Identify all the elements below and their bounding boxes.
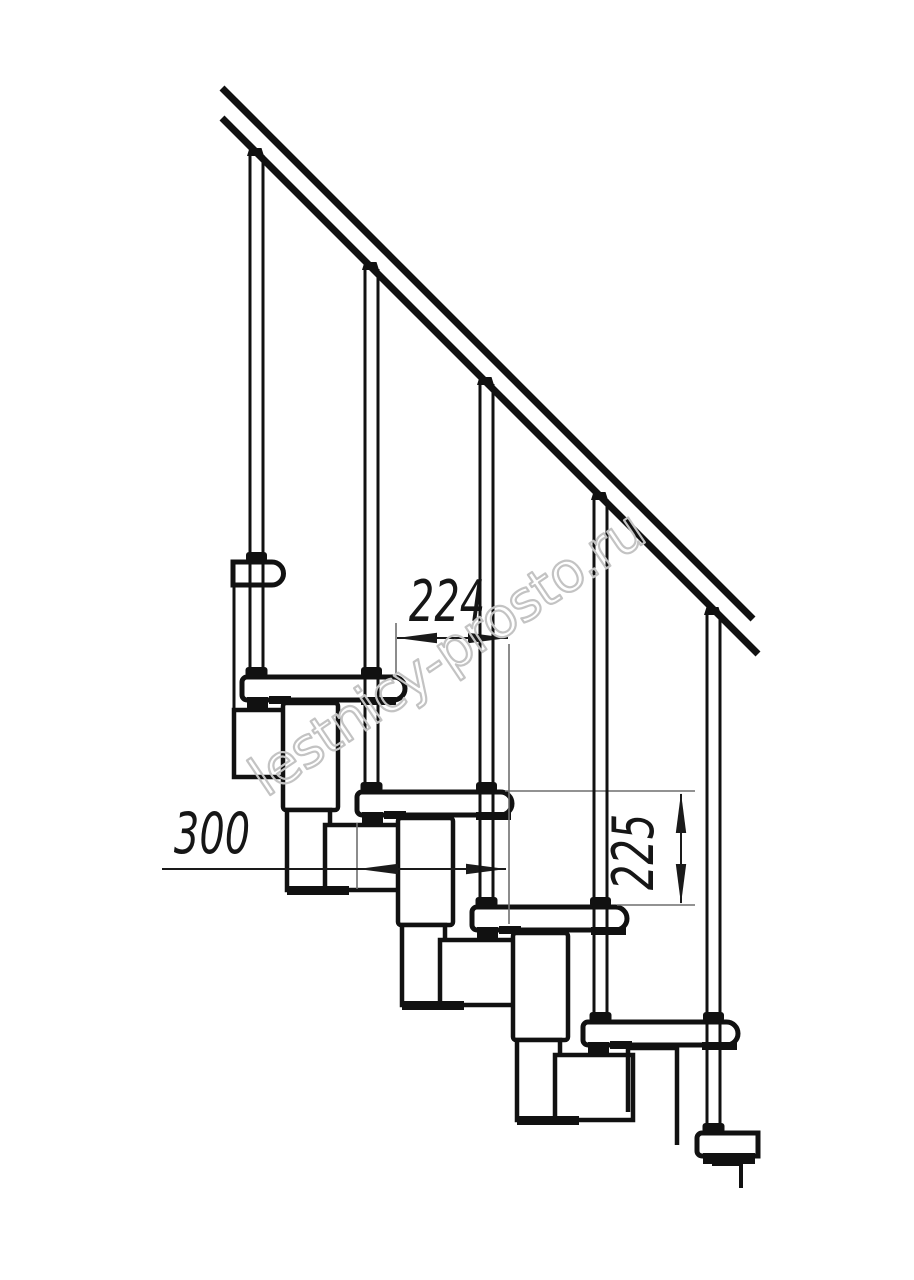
dimension-label-rise: 225 bbox=[600, 814, 667, 890]
bracket bbox=[703, 1153, 755, 1164]
baluster-collar bbox=[703, 1012, 724, 1022]
baluster-collar bbox=[246, 552, 267, 562]
module-block bbox=[440, 940, 518, 1005]
baluster-foot bbox=[703, 1123, 725, 1133]
module-block-cut bbox=[712, 1164, 741, 1188]
staircase-technical-drawing: 224 300 225 bbox=[0, 0, 914, 1280]
baluster-1 bbox=[246, 148, 268, 677]
drawing-canvas: 224 300 225 bbox=[0, 0, 914, 1280]
arrowhead-up bbox=[676, 793, 686, 833]
module-bracket bbox=[287, 886, 349, 895]
tread-4 bbox=[583, 1022, 738, 1045]
module-block bbox=[513, 933, 568, 1040]
handrail bbox=[222, 88, 758, 654]
baluster-5 bbox=[703, 607, 725, 1133]
arrowhead-down bbox=[676, 864, 686, 904]
module-block bbox=[325, 825, 403, 890]
baluster-foot bbox=[590, 1012, 612, 1022]
tread-0-partial bbox=[233, 562, 284, 585]
module-block bbox=[555, 1055, 633, 1120]
tread-2 bbox=[357, 792, 512, 815]
baluster-foot bbox=[476, 897, 498, 907]
tread-3 bbox=[472, 907, 627, 930]
baluster-foot bbox=[361, 782, 383, 792]
baluster-foot bbox=[246, 667, 268, 677]
arrowhead-right bbox=[466, 864, 506, 874]
handrail-top-edge bbox=[222, 88, 753, 619]
module-block bbox=[398, 818, 453, 925]
handrail-bottom-edge bbox=[222, 118, 758, 654]
baluster-collar bbox=[590, 897, 611, 907]
dimension-225: 225 bbox=[600, 793, 686, 904]
module-bracket bbox=[517, 1116, 579, 1125]
tread-5-partial bbox=[697, 1133, 758, 1156]
baluster-collar bbox=[476, 782, 497, 792]
dimension-label-tread-length: 300 bbox=[174, 800, 250, 867]
module-bracket bbox=[402, 1001, 464, 1010]
